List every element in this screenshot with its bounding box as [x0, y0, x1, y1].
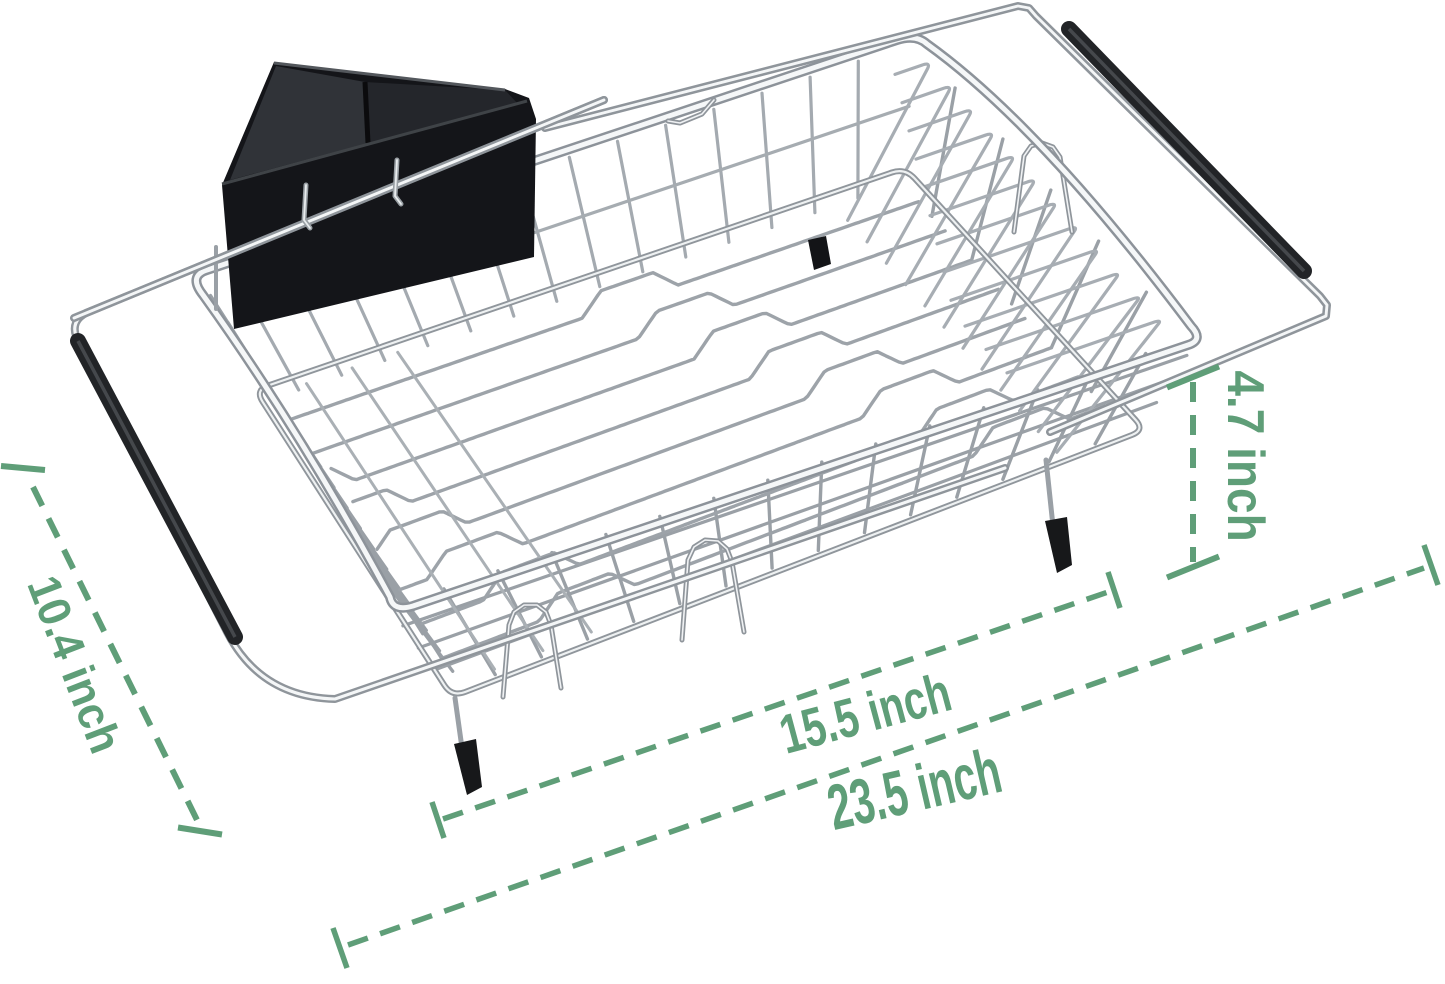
- svg-text:4.7 inch: 4.7 inch: [1216, 370, 1274, 541]
